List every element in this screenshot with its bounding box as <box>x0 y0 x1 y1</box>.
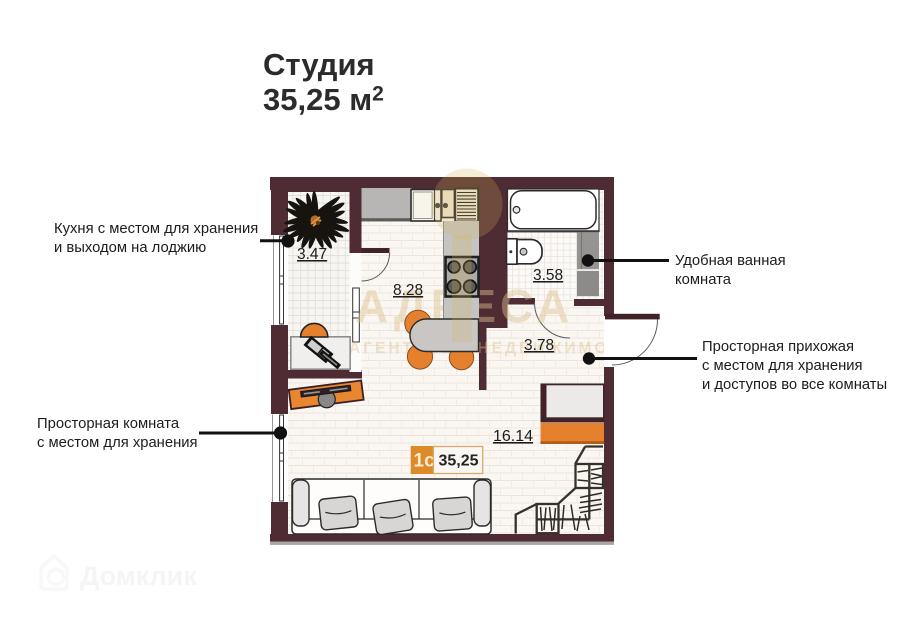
svg-text:и выходом на лоджию: и выходом на лоджию <box>54 240 206 256</box>
svg-text:Удобная ванная: Удобная ванная <box>675 253 786 269</box>
svg-text:3.58: 3.58 <box>533 267 563 284</box>
svg-text:3.47: 3.47 <box>297 246 327 263</box>
svg-text:комната: комната <box>675 272 732 288</box>
svg-text:Кухня с местом для хранения: Кухня с местом для хранения <box>54 221 258 237</box>
svg-text:Домклик: Домклик <box>80 561 197 591</box>
svg-text:Студия: Студия <box>263 47 375 82</box>
svg-text:3.78: 3.78 <box>524 337 554 354</box>
svg-text:и доступов во все комнаты: и доступов во все комнаты <box>702 377 887 393</box>
svg-text:Просторная прихожая: Просторная прихожая <box>702 339 854 355</box>
svg-text:16.14: 16.14 <box>493 428 533 445</box>
svg-text:Просторная комната: Просторная комната <box>37 416 180 432</box>
svg-text:35,25 м2: 35,25 м2 <box>263 82 384 117</box>
svg-text:8.28: 8.28 <box>393 282 423 299</box>
svg-text:с местом для хранения: с местом для хранения <box>37 435 198 451</box>
svg-text:1с: 1с <box>414 451 436 472</box>
svg-text:с местом для хранения: с местом для хранения <box>702 358 863 374</box>
svg-text:35,25: 35,25 <box>439 453 479 470</box>
